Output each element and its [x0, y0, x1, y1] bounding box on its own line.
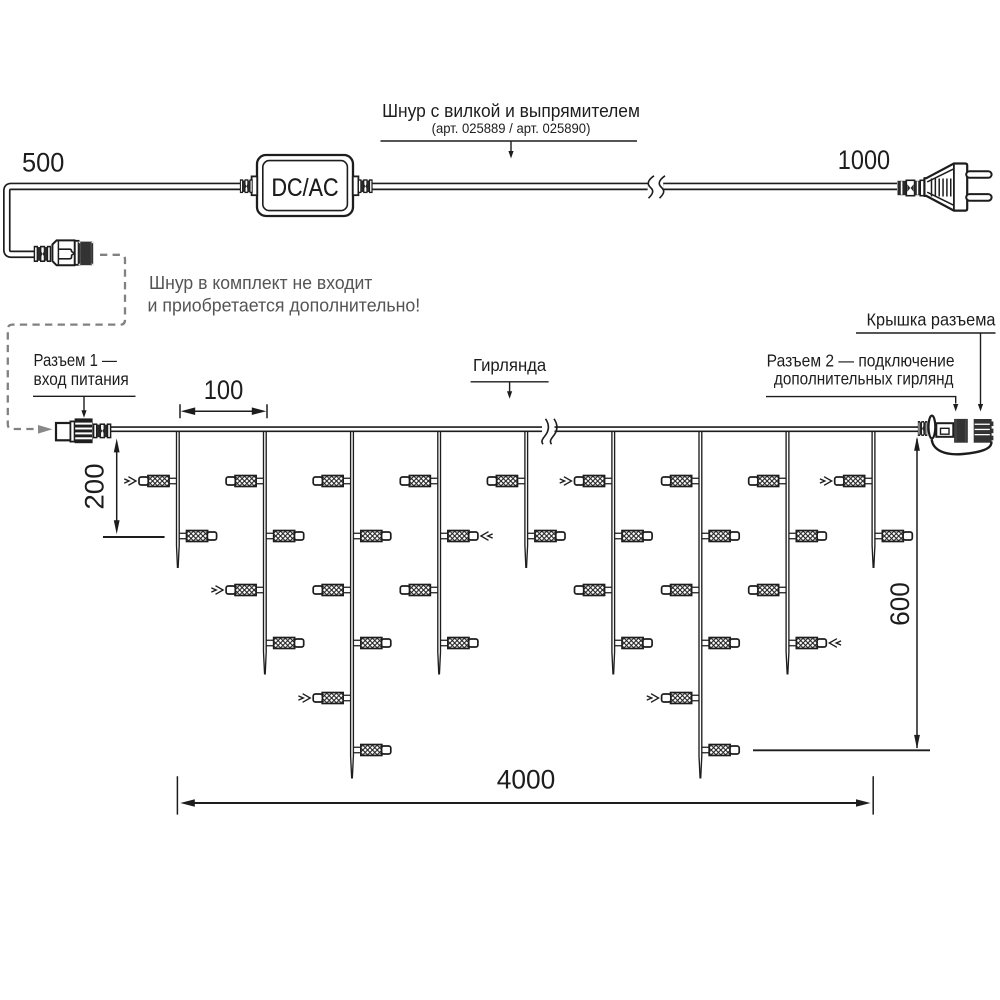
svg-text:дополнительных гирлянд: дополнительных гирлянд: [774, 370, 954, 389]
svg-text:1000: 1000: [838, 146, 890, 176]
svg-text:Разъем 1 —: Разъем 1 —: [34, 351, 118, 370]
svg-text:Шнур в комплект не входит: Шнур в комплект не входит: [149, 273, 372, 293]
svg-text:500: 500: [22, 149, 64, 178]
svg-text:600: 600: [885, 582, 915, 626]
svg-text:Шнур с вилкой и выпрямителем: Шнур с вилкой и выпрямителем: [382, 101, 640, 122]
svg-text:DC/AC: DC/AC: [272, 173, 339, 201]
svg-text:4000: 4000: [497, 764, 556, 794]
svg-text:Разъем 2 — подключение: Разъем 2 — подключение: [767, 350, 955, 370]
svg-text:Крышка разъема: Крышка разъема: [867, 310, 996, 330]
svg-text:(арт. 025889 / арт. 025890): (арт. 025889 / арт. 025890): [432, 120, 591, 136]
svg-text:100: 100: [204, 376, 243, 406]
svg-text:200: 200: [79, 463, 109, 509]
svg-text:вход питания: вход питания: [34, 369, 129, 389]
svg-text:Гирлянда: Гирлянда: [473, 355, 547, 376]
svg-text:и приобретается дополнительно!: и приобретается дополнительно!: [148, 295, 421, 315]
